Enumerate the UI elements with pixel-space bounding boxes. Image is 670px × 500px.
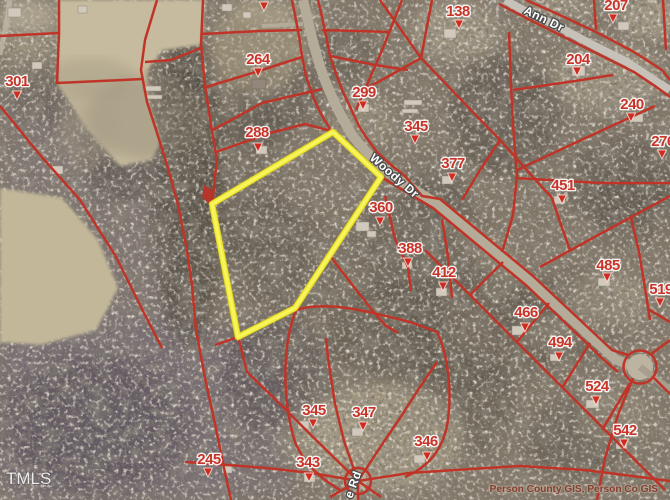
svg-text:276: 276: [651, 133, 670, 150]
svg-text:245: 245: [197, 451, 221, 468]
svg-text:299: 299: [352, 84, 376, 101]
svg-text:346: 346: [414, 433, 438, 450]
svg-text:204: 204: [566, 51, 591, 68]
svg-text:345: 345: [404, 118, 428, 135]
svg-text:345: 345: [302, 402, 326, 419]
svg-text:207: 207: [604, 0, 628, 14]
svg-text:494: 494: [548, 334, 573, 351]
svg-text:485: 485: [596, 257, 620, 274]
svg-text:542: 542: [613, 422, 637, 439]
svg-text:TMLS: TMLS: [6, 469, 51, 488]
svg-text:519: 519: [649, 281, 670, 298]
svg-text:347: 347: [352, 404, 376, 421]
svg-text:Person County GIS, Person Co G: Person County GIS, Person Co GIS: [490, 484, 659, 495]
svg-text:138: 138: [446, 3, 470, 20]
svg-text:360: 360: [369, 199, 393, 216]
svg-text:377: 377: [441, 155, 465, 172]
svg-text:288: 288: [245, 124, 269, 141]
svg-text:466: 466: [514, 304, 538, 321]
svg-text:412: 412: [432, 264, 456, 281]
svg-text:264: 264: [246, 51, 271, 68]
svg-text:240: 240: [620, 96, 644, 113]
svg-text:301: 301: [5, 73, 29, 90]
svg-text:388: 388: [398, 240, 422, 257]
svg-text:451: 451: [551, 177, 575, 194]
svg-text:343: 343: [296, 454, 320, 471]
svg-text:524: 524: [585, 378, 610, 395]
